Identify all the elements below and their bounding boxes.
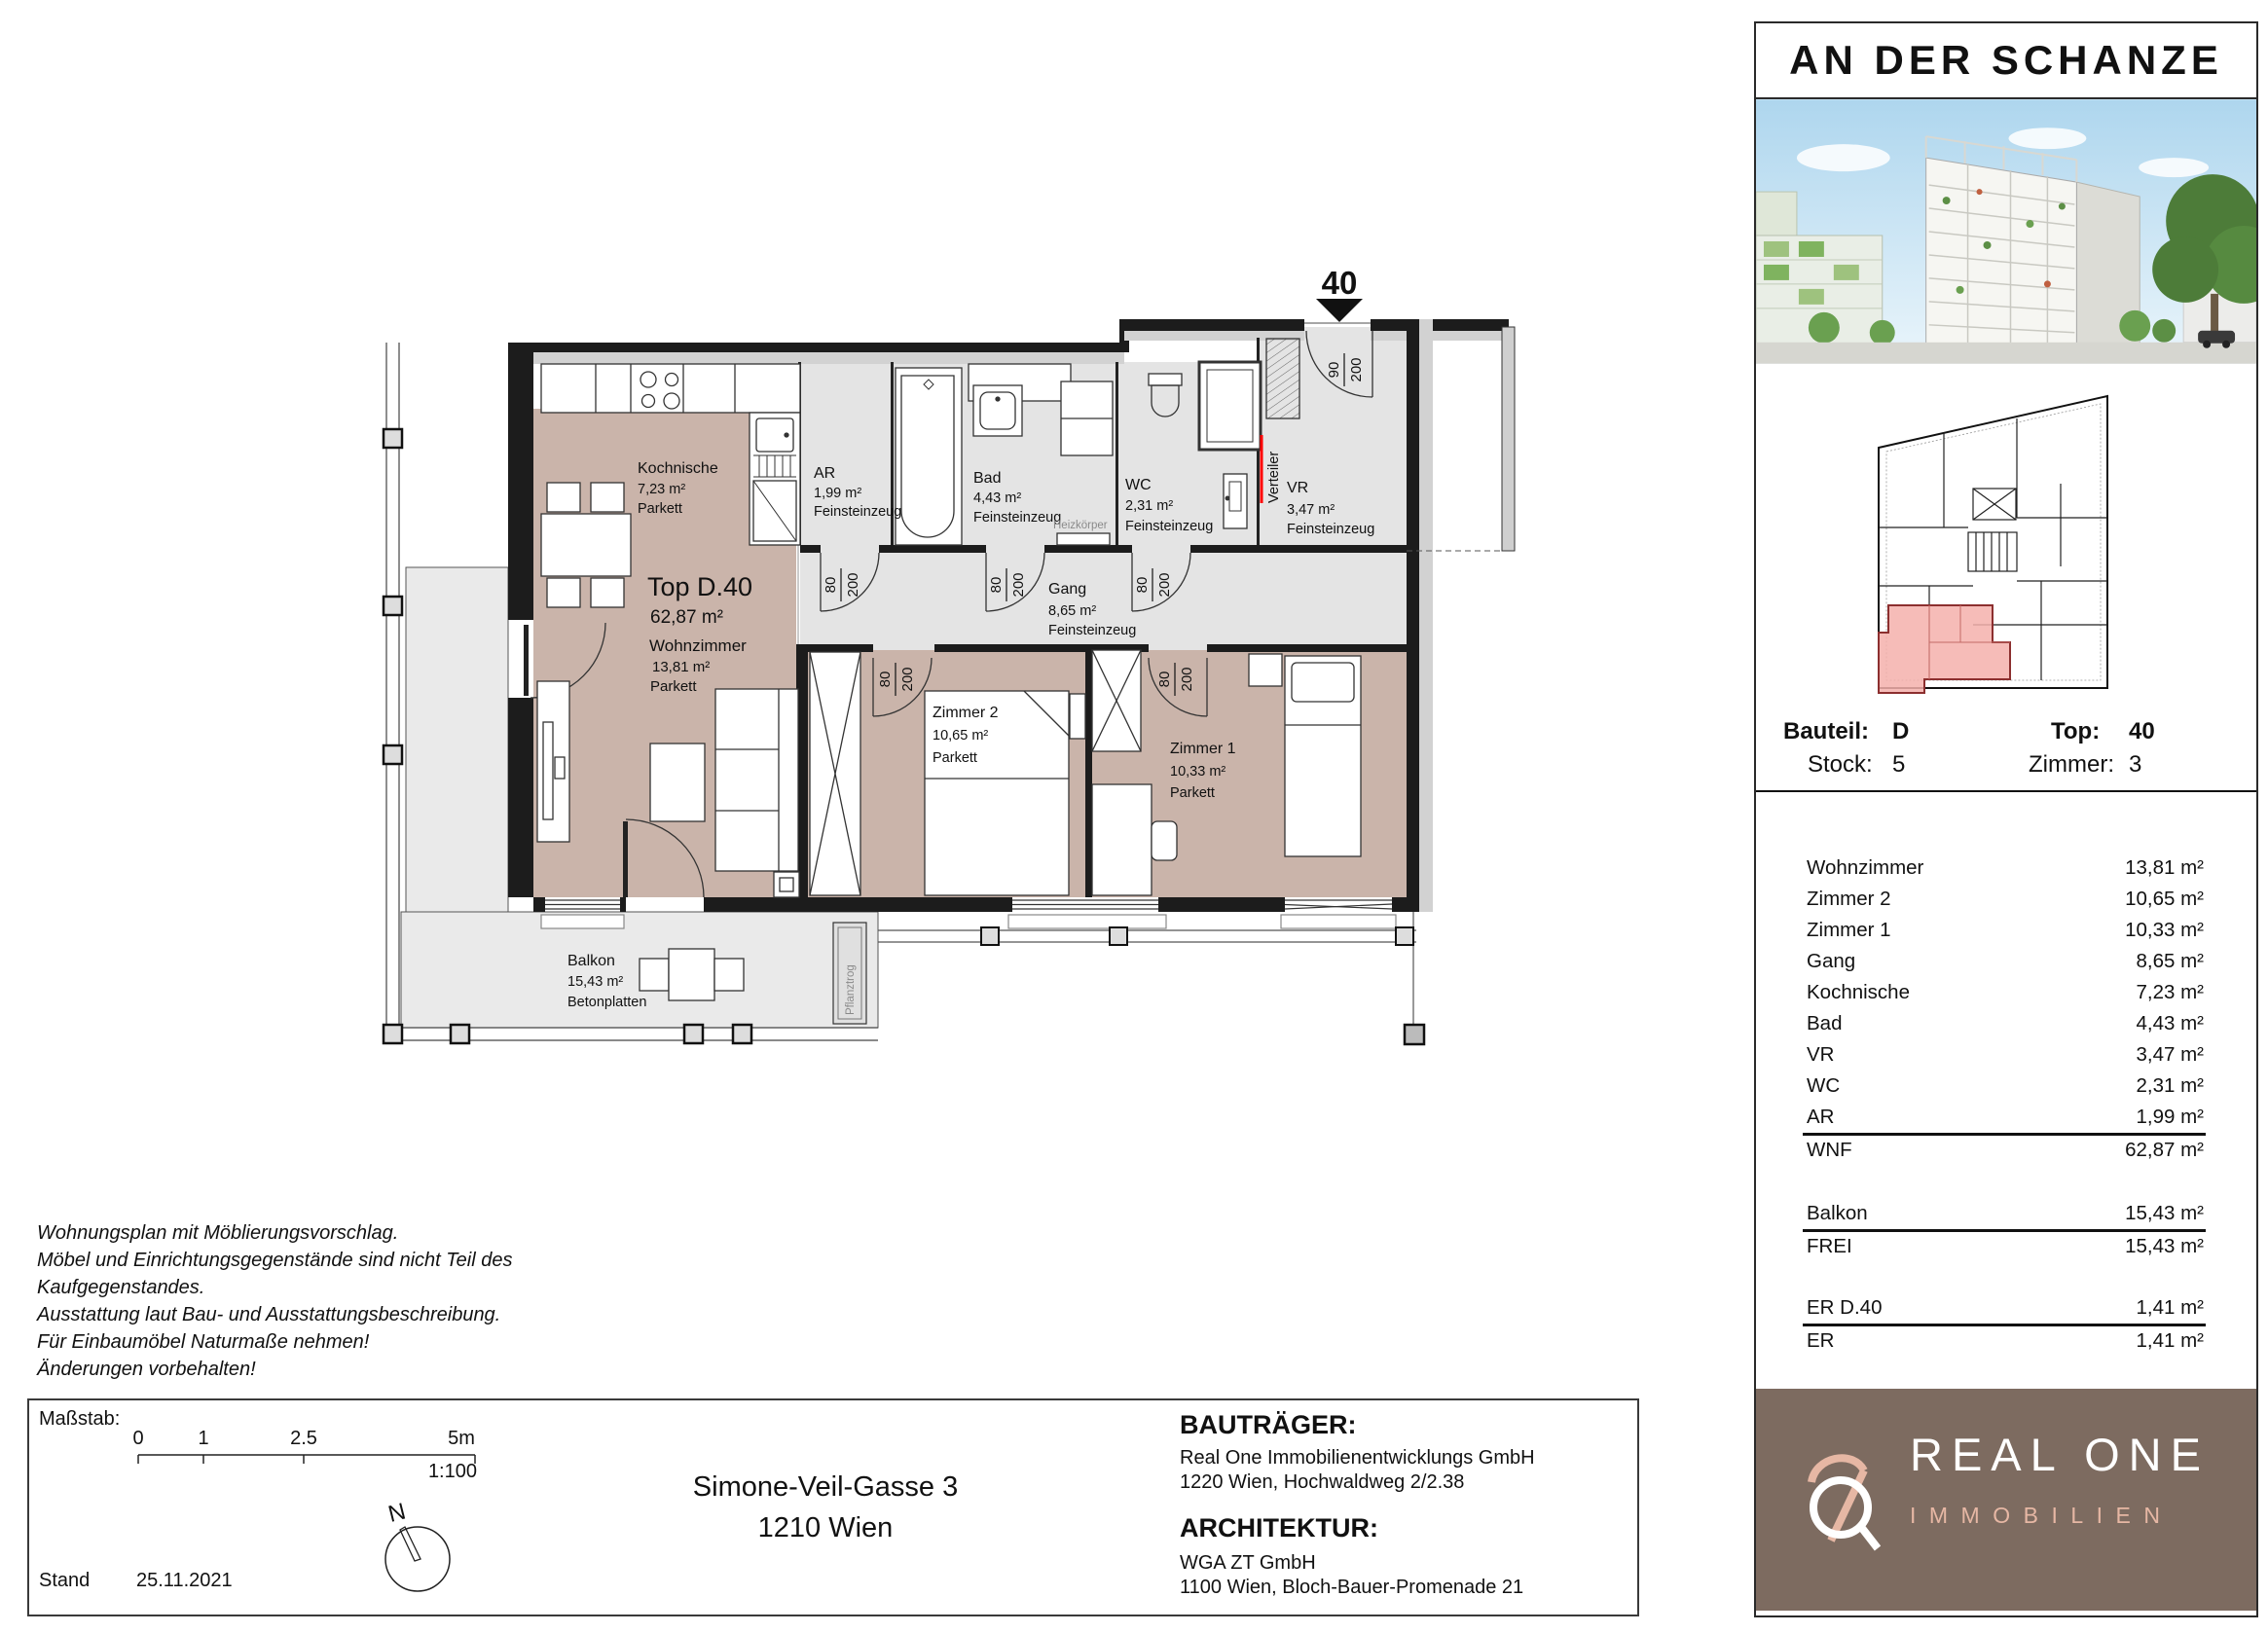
unit-title: Top D.40 (647, 572, 752, 601)
zimmer2-area: 10,65 m² (933, 728, 988, 744)
north-label: N (385, 1499, 408, 1528)
zimmer-value: 3 (2129, 751, 2141, 779)
key-plan (1871, 391, 2114, 698)
facade-railing (878, 912, 1424, 1044)
gang-name: Gang (1048, 581, 1086, 598)
gang-area: 8,65 m² (1048, 603, 1096, 619)
bad-floor: Feinsteinzeug (973, 510, 1061, 526)
table-sum-line (1803, 1324, 2206, 1326)
floor-plan-drawing: Pflanztrog (370, 175, 1538, 1100)
svg-text:200: 200 (899, 667, 916, 691)
kochnische-name: Kochnische (638, 460, 718, 477)
ar-area: 1,99 m² (814, 486, 861, 501)
scale-tick: 2.5 (290, 1428, 317, 1450)
note-line: Wohnungsplan mit Möblierungsvorschlag. (37, 1219, 621, 1247)
stand-label: Stand (39, 1570, 90, 1592)
zimmer2-name: Zimmer 2 (933, 705, 999, 721)
architektur-label: ARCHITEKTUR: (1180, 1513, 1378, 1543)
table-sum-line (1803, 1133, 2206, 1136)
note-line: Für Einbaumöbel Naturmaße nehmen! (37, 1328, 621, 1356)
pflanztrog-label: Pflanztrog (845, 964, 857, 1015)
window-zimmer1 (1281, 900, 1396, 928)
bad-name: Bad (973, 470, 1001, 487)
address-city: 1210 Wien (758, 1507, 894, 1548)
scale-ratio: 1:100 (428, 1461, 477, 1483)
gang-floor: Feinsteinzeug (1048, 623, 1136, 638)
scale-tick: 5m (448, 1428, 475, 1450)
kochnische-area: 7,23 m² (638, 482, 685, 497)
stock-value: 5 (1892, 751, 1905, 779)
bautraeger-address: 1220 Wien, Hochwaldweg 2/2.38 (1180, 1471, 1464, 1494)
architektur-address: 1100 Wien, Bloch-Bauer-Promenade 21 (1180, 1577, 1523, 1599)
svg-text:200: 200 (1010, 572, 1027, 597)
top-label: Top: (2051, 718, 2100, 745)
unit-marker-number: 40 (1322, 265, 1358, 301)
bautraeger-name: Real One Immobilienentwicklungs GmbH (1180, 1447, 1535, 1470)
bad-area: 4,43 m² (973, 490, 1021, 506)
vr-area: 3,47 m² (1287, 502, 1335, 518)
top-value: 40 (2129, 718, 2155, 745)
brand-subtitle: IMMOBILIEN (1910, 1503, 2210, 1529)
pflanztrog-box: Pflanztrog (833, 923, 866, 1024)
note-line: Ausstattung laut Bau- und Ausstattungsbe… (37, 1301, 621, 1328)
table-sum-line (1803, 1229, 2206, 1232)
svg-text:80: 80 (877, 671, 894, 688)
window-zimmer2 (1008, 900, 1166, 928)
stand-date: 25.11.2021 (136, 1570, 233, 1592)
note-line: Möbel und Einrichtungsgegenstände sind n… (37, 1247, 621, 1274)
project-title: AN DER SCHANZE (1756, 23, 2256, 99)
svg-text:80: 80 (1156, 671, 1173, 688)
stairwell-edge (1502, 327, 1515, 551)
address-box: Simone-Veil-Gasse 3 1210 Wien (493, 1398, 1160, 1616)
heizkoerper-label: Heizkörper (1053, 520, 1108, 531)
bautraeger-label: BAUTRÄGER: (1180, 1410, 1357, 1440)
brand-name: REAL ONE (1910, 1428, 2210, 1481)
wohnzimmer-area: 13,81 m² (652, 659, 710, 675)
svg-text:80: 80 (1134, 577, 1151, 594)
real-one-logo-monogram (1785, 1443, 1902, 1560)
building-render-image (1756, 99, 2256, 364)
kochnische-floor: Parkett (638, 501, 682, 517)
vr-name: VR (1287, 480, 1308, 496)
architektur-name: WGA ZT GmbH (1180, 1552, 1316, 1575)
real-one-logo-box: REAL ONE IMMOBILIEN (1756, 1389, 2256, 1611)
vr-floor: Feinsteinzeug (1287, 522, 1374, 537)
zimmer1-area: 10,33 m² (1170, 764, 1225, 780)
zimmer2-floor: Parkett (933, 750, 977, 766)
divider (1756, 790, 2256, 792)
scale-box: Maßstab: 0 1 2.5 5m 1:100 Stand 25.11.20… (27, 1398, 496, 1616)
bauteil-label: Bauteil: (1783, 718, 1869, 745)
scale-tick: 1 (198, 1428, 208, 1450)
svg-text:80: 80 (988, 577, 1005, 594)
svg-text:200: 200 (1179, 667, 1195, 691)
floorplan-sheet: { "project": {"title": "AN DER SCHANZE"}… (0, 0, 2268, 1633)
zimmer1-floor: Parkett (1170, 785, 1215, 801)
zimmer-label: Zimmer: (2029, 751, 2114, 779)
north-arrow: N (343, 1481, 459, 1608)
scale-tick: 0 (132, 1428, 143, 1450)
bauteil-value: D (1892, 718, 1909, 745)
balkon-floor: Betonplatten (567, 995, 646, 1010)
window-living (541, 900, 624, 928)
svg-text:200: 200 (1348, 357, 1365, 381)
wc-floor: Feinsteinzeug (1125, 519, 1213, 534)
address-street: Simone-Veil-Gasse 3 (693, 1467, 958, 1507)
wc-area: 2,31 m² (1125, 498, 1173, 514)
wohnzimmer-floor: Parkett (650, 678, 697, 695)
verteiler-label: Verteiler (1266, 452, 1282, 503)
key-plan-highlighted-unit (1879, 605, 2010, 693)
disclaimer-notes: Wohnungsplan mit Möblierungsvorschlag. M… (37, 1219, 621, 1383)
ar-name: AR (814, 465, 835, 482)
zimmer1-name: Zimmer 1 (1170, 741, 1236, 757)
note-line: Änderungen vorbehalten! (37, 1356, 621, 1383)
svg-text:200: 200 (845, 572, 861, 597)
balkon-name: Balkon (567, 953, 615, 969)
svg-text:90: 90 (1326, 362, 1342, 379)
svg-text:80: 80 (823, 577, 839, 594)
svg-text:200: 200 (1156, 572, 1173, 597)
firms-box: BAUTRÄGER: Real One Immobilienentwicklun… (1158, 1398, 1639, 1616)
stock-label: Stock: (1808, 751, 1873, 779)
balkon-area: 15,43 m² (567, 974, 623, 990)
unit-marker: 40 (1316, 265, 1363, 322)
sidebar: AN DER SCHANZE (1754, 21, 2258, 1617)
wc-name: WC (1125, 477, 1152, 493)
ar-floor: Feinsteinzeug (814, 504, 901, 520)
zimmer2-furniture (925, 691, 1085, 895)
wohnzimmer-name: Wohnzimmer (649, 636, 747, 655)
massstab-label: Maßstab: (39, 1408, 120, 1431)
unit-area: 62,87 m² (650, 607, 723, 628)
note-line: Kaufgegenstandes. (37, 1274, 621, 1301)
